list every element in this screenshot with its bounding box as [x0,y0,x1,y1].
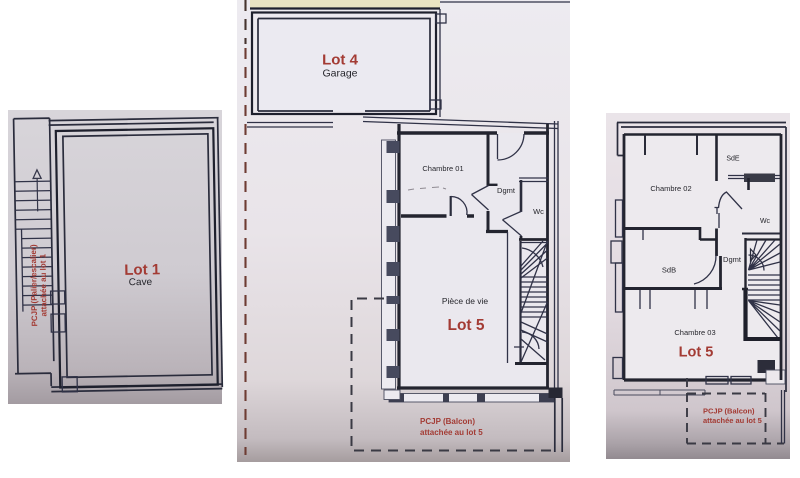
svg-text:Wc: Wc [760,218,771,225]
svg-text:Wc: Wc [533,207,544,216]
svg-text:Lot 5: Lot 5 [679,345,714,361]
svg-text:Lot 4: Lot 4 [322,52,358,69]
svg-text:Dgmt: Dgmt [497,186,516,195]
svg-text:PCJP (Balcon): PCJP (Balcon) [420,417,475,426]
svg-text:Garage: Garage [322,68,357,80]
svg-text:Chambre 02: Chambre 02 [650,184,691,193]
svg-text:Chambre 03: Chambre 03 [674,328,715,337]
svg-text:Pièce de vie: Pièce de vie [442,296,489,306]
svg-text:attachée au lot 1: attachée au lot 1 [38,253,48,316]
svg-text:Dgmt: Dgmt [723,255,742,264]
svg-text:Cave: Cave [129,277,153,288]
svg-text:Chambre 01: Chambre 01 [422,164,463,173]
svg-text:SdE: SdE [726,156,740,163]
svg-text:Lot 5: Lot 5 [447,317,484,334]
svg-text:SdB: SdB [662,266,676,275]
svg-text:attachée au lot 5: attachée au lot 5 [420,428,483,437]
svg-text:attachée au lot 5: attachée au lot 5 [703,416,762,425]
svg-text:PCJP (Balcon): PCJP (Balcon) [703,407,755,416]
